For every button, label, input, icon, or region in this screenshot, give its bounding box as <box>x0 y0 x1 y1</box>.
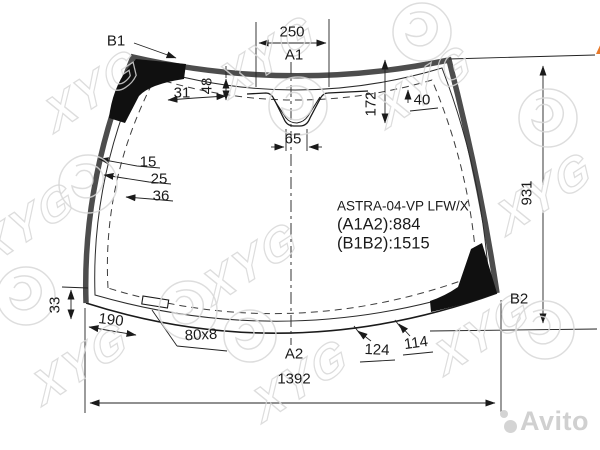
avito-logo-dot-icon <box>500 410 508 418</box>
avito-watermark: Avito <box>492 404 600 440</box>
dim-right-height-931: 931 <box>520 180 535 205</box>
dim-edge-offset-25: 25 <box>151 172 168 187</box>
dim-band-depth-48: 48 <box>200 78 215 95</box>
dim-corner-band-31: 31 <box>174 86 191 101</box>
part-diagonal-b1b2: (B1B2):1515 <box>337 235 430 254</box>
dim-bottom-mark-114: 114 <box>403 334 429 352</box>
avito-watermark-text: Avito <box>520 406 589 437</box>
dim-bottom-offset-190: 190 <box>98 311 125 329</box>
point-label-a1: A1 <box>285 48 303 63</box>
point-label-b2: B2 <box>510 292 528 307</box>
point-label-b1: B1 <box>107 34 125 49</box>
dim-bottom-mark-124: 124 <box>364 342 390 358</box>
dim-mount-width-65: 65 <box>285 132 302 147</box>
dim-band-width-40: 40 <box>414 93 431 108</box>
dim-edge-offset-36: 36 <box>153 189 170 204</box>
windshield-diagram-image: XYG XYG XYG XYG XYG XYG XYG XYG XYG B1 2… <box>0 0 600 450</box>
part-diagonal-a1a2: (A1A2):884 <box>337 216 420 235</box>
dim-edge-offset-15: 15 <box>140 155 157 170</box>
dim-center-depth-172: 172 <box>364 91 379 116</box>
dim-bottom-step-33: 33 <box>48 297 63 314</box>
part-model-code: ASTRA-04-VP LFW/X <box>337 199 469 214</box>
avito-logo-dot-icon <box>504 420 517 433</box>
dim-top-width-250: 250 <box>279 25 304 40</box>
point-label-a2: A2 <box>285 347 303 362</box>
at-logo-letter-a-shape <box>596 9 600 54</box>
dim-bottom-rect-80x8: 80x8 <box>184 327 217 344</box>
dim-bottom-width-1392: 1392 <box>277 372 310 387</box>
